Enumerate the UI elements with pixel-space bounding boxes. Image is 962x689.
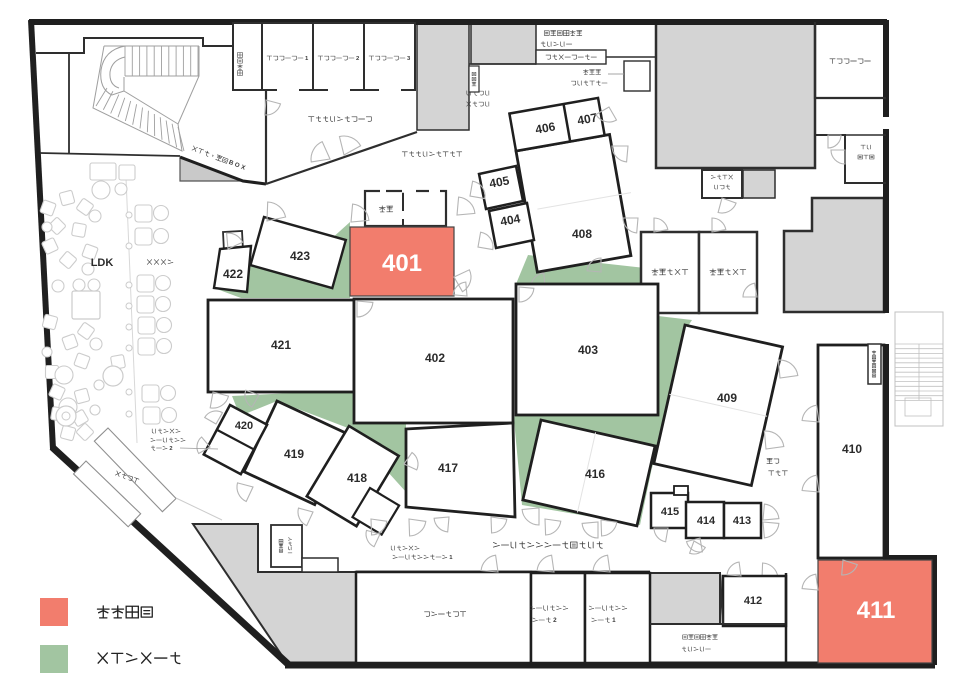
svg-text:402: 402	[425, 351, 445, 365]
svg-text:413: 413	[733, 515, 751, 527]
svg-text:422: 422	[223, 267, 243, 281]
svg-text:411: 411	[857, 597, 896, 624]
svg-text:421: 421	[271, 338, 291, 352]
svg-text:LDK: LDK	[91, 257, 114, 269]
svg-text:2: 2	[169, 446, 172, 452]
svg-text:417: 417	[438, 461, 458, 475]
svg-text:408: 408	[572, 227, 592, 241]
svg-text:420: 420	[235, 420, 253, 432]
svg-text:423: 423	[290, 249, 310, 263]
svg-text:418: 418	[347, 471, 367, 485]
svg-text:403: 403	[578, 343, 598, 357]
svg-text:412: 412	[744, 595, 762, 607]
svg-text:1: 1	[612, 617, 616, 624]
svg-text:410: 410	[842, 442, 862, 456]
svg-text:414: 414	[697, 515, 716, 527]
svg-text:401: 401	[382, 250, 422, 277]
svg-text:415: 415	[661, 506, 679, 518]
svg-text:409: 409	[717, 391, 737, 405]
svg-text:416: 416	[585, 467, 605, 481]
svg-text:419: 419	[284, 447, 304, 461]
svg-text:2: 2	[553, 617, 557, 624]
